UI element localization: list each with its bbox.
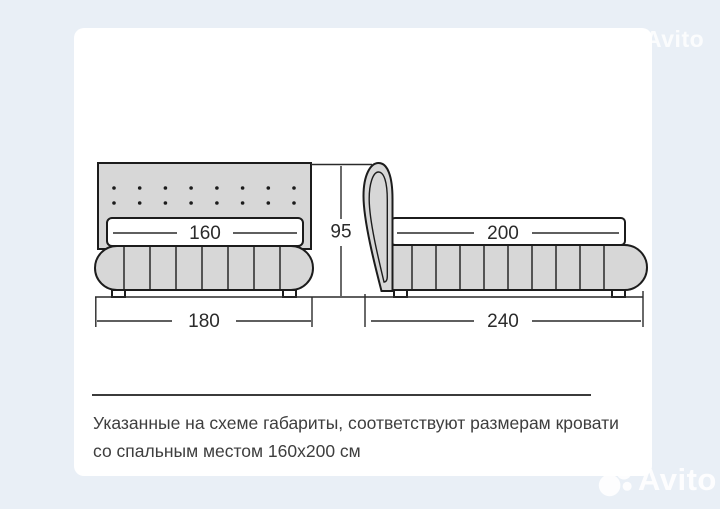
avito-logo-icon: [614, 27, 640, 53]
dimension-overall-width: 180: [96, 297, 312, 332]
watermark-bottom-right: Avito: [597, 462, 717, 498]
side-left-leg: [394, 290, 407, 297]
dimension-height: 95: [311, 165, 372, 297]
label-180: 180: [188, 311, 220, 332]
side-headboard: [364, 163, 393, 291]
caption-divider: [92, 394, 591, 396]
front-left-leg: [112, 290, 125, 297]
front-right-leg: [283, 290, 296, 297]
caption-text: Указанные на схеме габариты, соответству…: [93, 409, 619, 465]
label-160: 160: [189, 223, 221, 244]
side-right-leg: [612, 290, 625, 297]
avito-wordmark: Avito: [645, 26, 704, 53]
watermark-top-right: Avito: [614, 26, 704, 53]
label-95: 95: [330, 222, 351, 243]
label-200: 200: [487, 223, 519, 244]
label-240: 240: [487, 311, 519, 332]
avito-logo-icon: [597, 462, 633, 498]
caption-line-2: со спальным местом 160x200 см: [93, 437, 619, 465]
caption-line-1: Указанные на схеме габариты, соответству…: [93, 409, 619, 437]
avito-wordmark: Avito: [638, 462, 717, 498]
side-base: [391, 245, 647, 290]
